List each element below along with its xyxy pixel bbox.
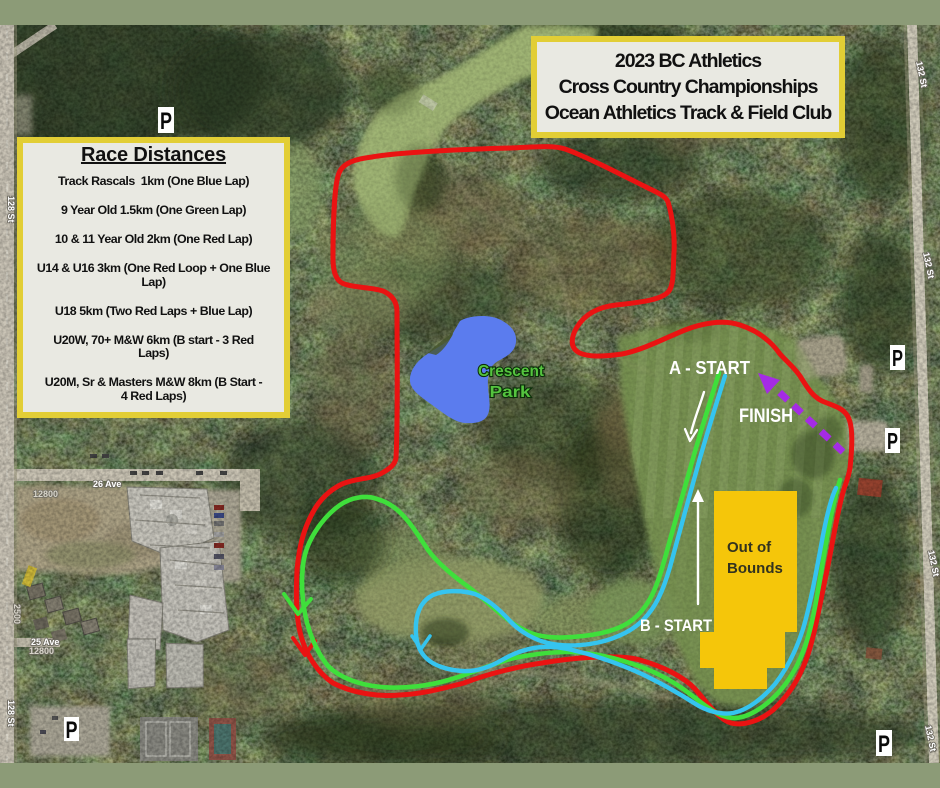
svg-text:Crescent: Crescent	[478, 363, 545, 380]
svg-text:P: P	[887, 428, 898, 454]
svg-text:Park: Park	[490, 384, 531, 401]
svg-text:P: P	[160, 108, 172, 135]
svg-text:2500: 2500	[12, 604, 22, 624]
svg-text:26 Ave: 26 Ave	[93, 479, 121, 489]
svg-text:P: P	[66, 717, 78, 744]
svg-text:Bounds: Bounds	[727, 560, 783, 577]
svg-text:A - START: A - START	[669, 358, 750, 378]
svg-text:P: P	[878, 731, 890, 758]
svg-text:P: P	[892, 345, 903, 371]
svg-text:Out of: Out of	[727, 539, 772, 556]
svg-text:128 St: 128 St	[6, 196, 16, 223]
svg-text:FINISH: FINISH	[739, 406, 793, 427]
svg-text:12800: 12800	[33, 489, 58, 499]
svg-text:12800: 12800	[29, 646, 54, 656]
svg-text:128 St: 128 St	[6, 700, 16, 727]
svg-text:B - START: B - START	[640, 617, 712, 635]
